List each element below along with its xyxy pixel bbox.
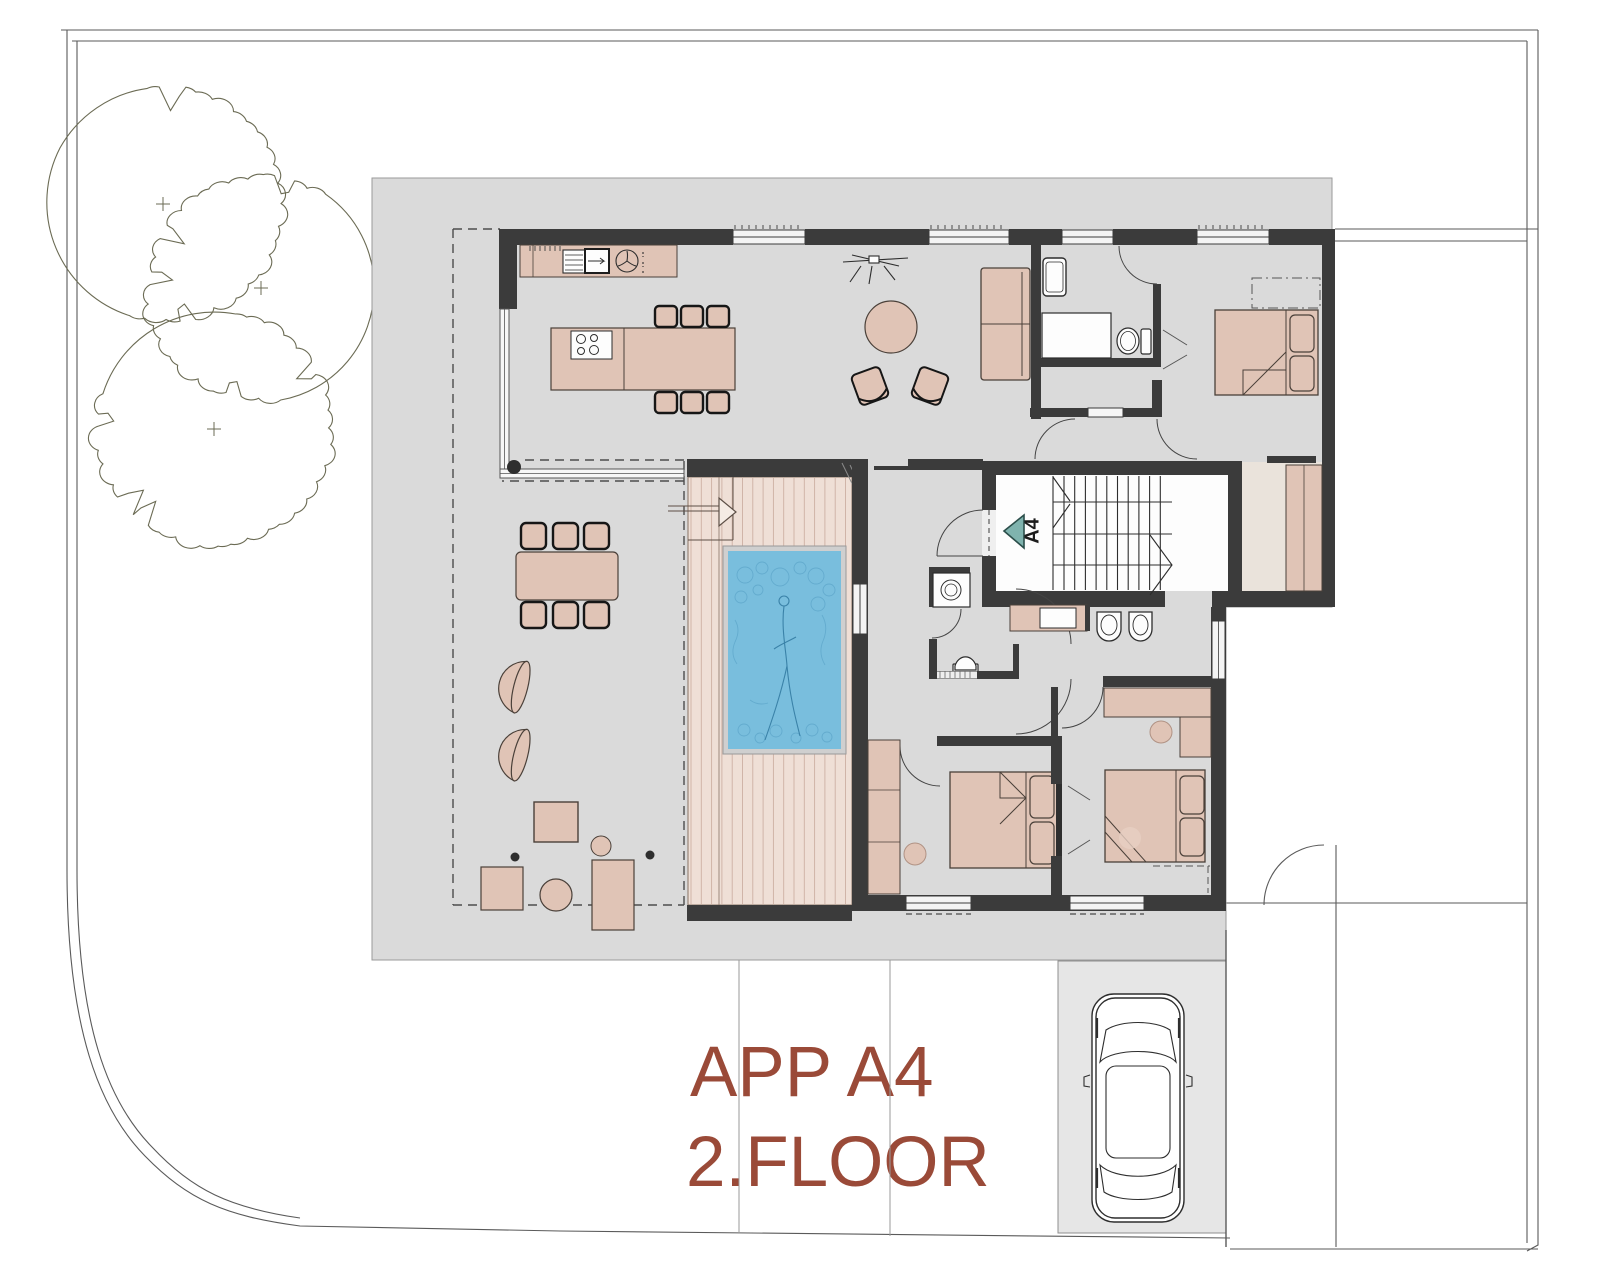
svg-text:APP A4: APP A4: [690, 1033, 933, 1112]
svg-text:A4: A4: [1021, 517, 1043, 543]
svg-text:2.FLOOR: 2.FLOOR: [686, 1123, 990, 1202]
